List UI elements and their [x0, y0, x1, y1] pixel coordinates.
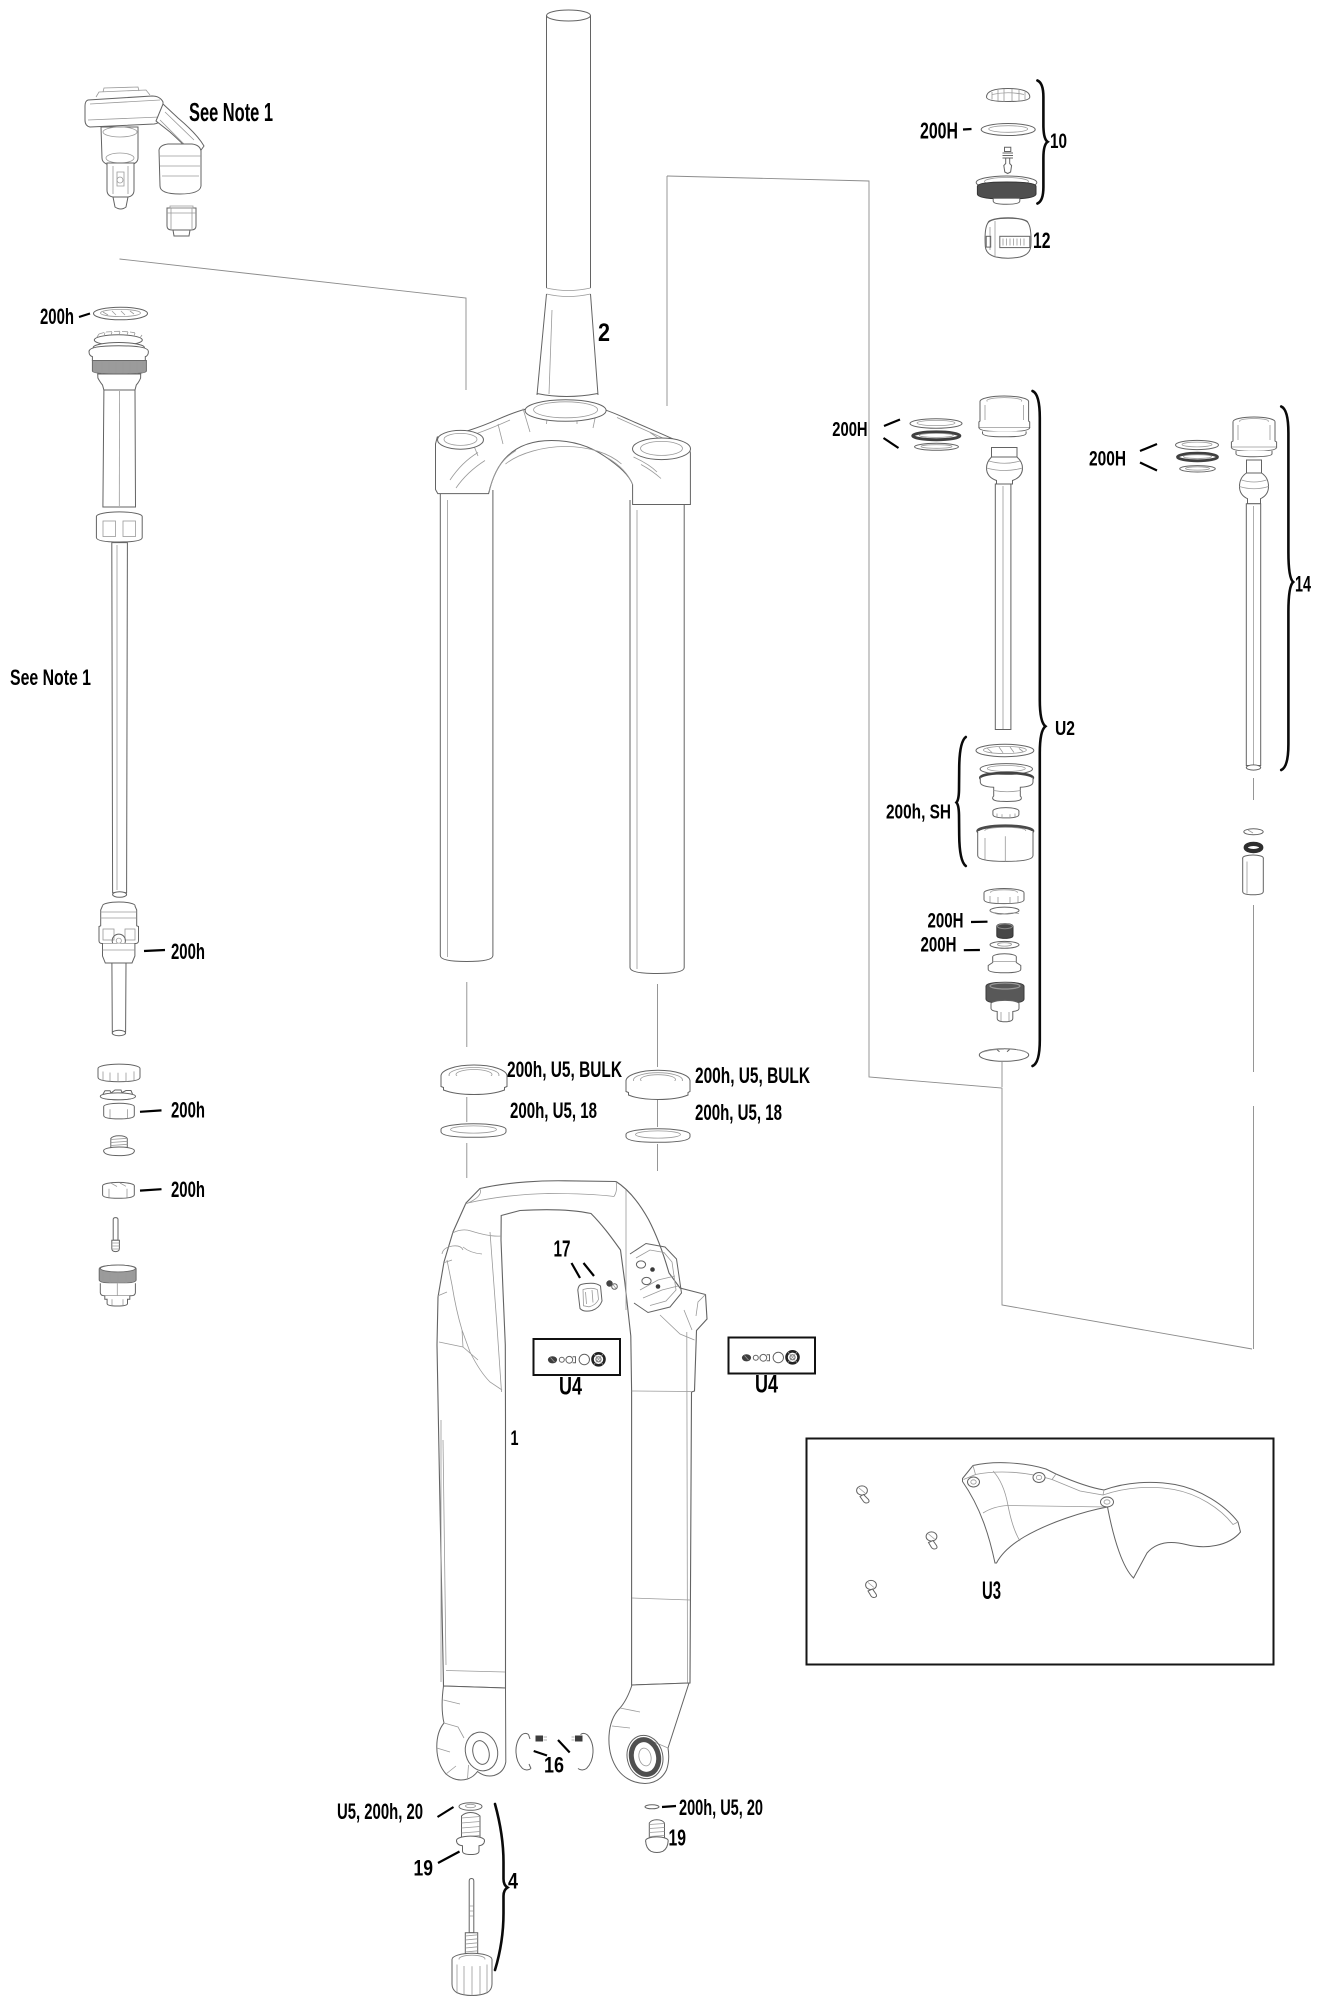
svg-text:200h, U5, 18: 200h, U5, 18 — [695, 1100, 782, 1125]
svg-text:U4: U4 — [559, 1373, 582, 1401]
svg-text:14: 14 — [1295, 572, 1311, 597]
svg-text:200H: 200H — [1089, 447, 1126, 471]
svg-text:10: 10 — [1050, 130, 1067, 153]
svg-text:200h, U5, 18: 200h, U5, 18 — [510, 1098, 597, 1123]
svg-text:4: 4 — [508, 1869, 519, 1894]
svg-text:U2: U2 — [1055, 718, 1075, 740]
svg-text:U4: U4 — [755, 1371, 778, 1399]
svg-text:200h: 200h — [40, 304, 74, 329]
svg-text:19: 19 — [669, 1825, 687, 1851]
svg-text:200h, SH: 200h, SH — [886, 802, 951, 824]
svg-text:200h: 200h — [171, 939, 205, 964]
svg-text:See Note 1: See Note 1 — [189, 97, 273, 127]
svg-text:17: 17 — [554, 1236, 571, 1262]
svg-text:U3: U3 — [982, 1577, 1001, 1605]
svg-text:200H: 200H — [928, 909, 964, 933]
svg-text:2: 2 — [598, 319, 610, 347]
svg-text:200h, U5, BULK: 200h, U5, BULK — [507, 1057, 622, 1082]
svg-text:16: 16 — [544, 1753, 564, 1778]
svg-text:200h: 200h — [171, 1098, 205, 1123]
svg-text:200h: 200h — [171, 1177, 205, 1202]
svg-text:See Note 1: See Note 1 — [10, 665, 91, 690]
svg-text:200H: 200H — [921, 933, 957, 957]
svg-text:1: 1 — [511, 1427, 519, 1450]
svg-text:200h, U5, BULK: 200h, U5, BULK — [695, 1063, 810, 1088]
svg-text:19: 19 — [414, 1856, 434, 1881]
svg-text:12: 12 — [1033, 228, 1051, 253]
svg-text:U5, 200h, 20: U5, 200h, 20 — [337, 1799, 423, 1824]
svg-text:200h, U5, 20: 200h, U5, 20 — [679, 1795, 763, 1820]
svg-text:200H: 200H — [920, 118, 958, 144]
svg-text:200H: 200H — [832, 418, 867, 441]
